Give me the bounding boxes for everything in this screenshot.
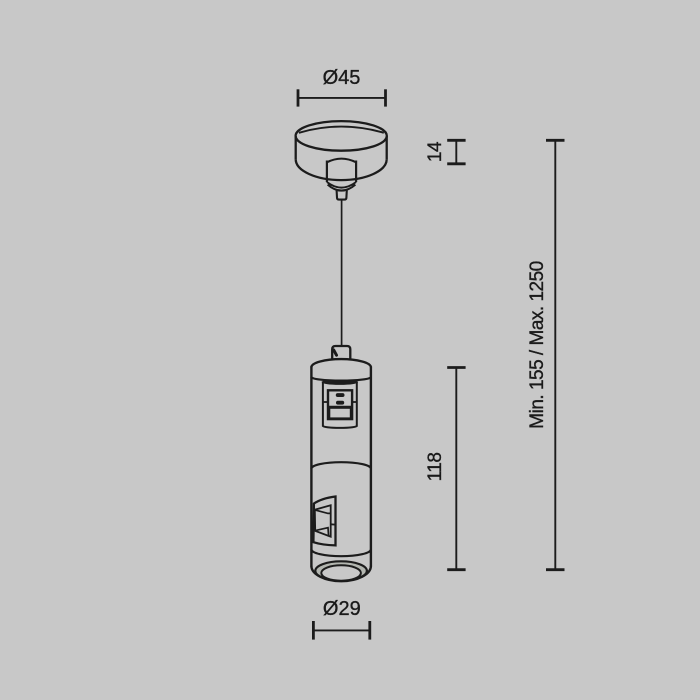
svg-text:118: 118 <box>425 453 446 482</box>
svg-text:Ø29: Ø29 <box>323 598 361 620</box>
svg-text:Min. 155 / Max. 1250: Min. 155 / Max. 1250 <box>527 261 548 428</box>
svg-text:14: 14 <box>425 141 446 162</box>
svg-text:Ø45: Ø45 <box>323 67 361 89</box>
